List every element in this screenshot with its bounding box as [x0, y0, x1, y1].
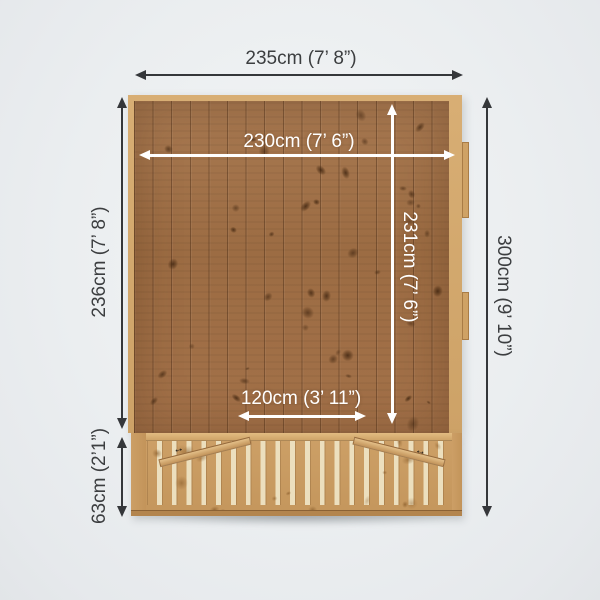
dimension-label-overall-width: 235cm (7’ 8”) [245, 48, 356, 70]
dimension-arrow-overall-width [135, 69, 463, 81]
wood-knot [244, 366, 250, 371]
veranda-right-post [452, 433, 462, 516]
wood-knot [406, 199, 416, 207]
wood-knot [239, 377, 251, 385]
wood-knot [405, 414, 422, 433]
wood-knot [433, 441, 443, 452]
dimension-arrow-veranda-depth [116, 437, 128, 517]
wood-knot [340, 165, 352, 180]
dimension-label-internal-depth: 231cm (7’ 6”) [398, 211, 420, 322]
wood-knot [321, 290, 331, 303]
dimension-label-overall-depth: 300cm (9’ 10”) [492, 235, 514, 357]
wood-knot [413, 121, 426, 134]
wood-knot [354, 108, 369, 124]
wood-knot [346, 245, 361, 260]
wood-knot [344, 373, 351, 379]
dimension-label-opening-width: 120cm (3’ 11”) [241, 388, 361, 410]
veranda-front-edge [131, 510, 462, 516]
wood-knot [312, 198, 320, 206]
wood-knot [374, 269, 382, 276]
wood-knot [359, 137, 370, 148]
wood-knot [382, 471, 387, 475]
wood-knot [299, 304, 317, 322]
wood-knot [425, 399, 431, 405]
wood-knot [340, 348, 355, 364]
wood-knot [262, 290, 275, 303]
dimension-label-side-depth: 236cm (7’ 8”) [89, 206, 111, 317]
wood-knot [362, 494, 371, 506]
side-window-frame [462, 142, 469, 218]
dimension-label-veranda-depth: 63cm (2’1”) [89, 428, 111, 524]
wood-knot [156, 368, 169, 380]
wood-knot [229, 225, 238, 234]
wood-knot [424, 229, 430, 238]
wood-knot [166, 257, 180, 272]
wood-knot [300, 322, 310, 332]
wood-knot [314, 163, 328, 177]
dimension-arrow-side-depth [116, 97, 128, 429]
wood-knot [305, 287, 316, 299]
wood-knot [284, 490, 292, 497]
wood-knot [299, 198, 314, 213]
veranda: ↔ ↔ [131, 433, 462, 516]
dimension-label-internal-width: 230cm (7’ 6”) [243, 131, 354, 153]
wood-knot [415, 203, 422, 210]
wood-knot [231, 203, 241, 213]
dimension-arrow-internal-depth [386, 104, 398, 424]
wood-knot [403, 393, 413, 403]
veranda-left-post [131, 433, 146, 516]
veranda-top-rail [131, 433, 462, 441]
side-window-frame [462, 292, 469, 340]
wood-knot [432, 285, 444, 298]
wood-knot [188, 342, 196, 350]
wood-knot [271, 495, 278, 501]
wood-knot [175, 475, 190, 491]
wood-knot [268, 231, 275, 238]
dimension-arrow-opening-width [238, 410, 366, 422]
wood-knot [149, 396, 160, 407]
wood-knot [398, 186, 407, 192]
product-dimension-diagram: ↔ ↔ 235cm (7’ 8”) 236cm (7’ 8”) 63cm (2’… [0, 0, 600, 600]
